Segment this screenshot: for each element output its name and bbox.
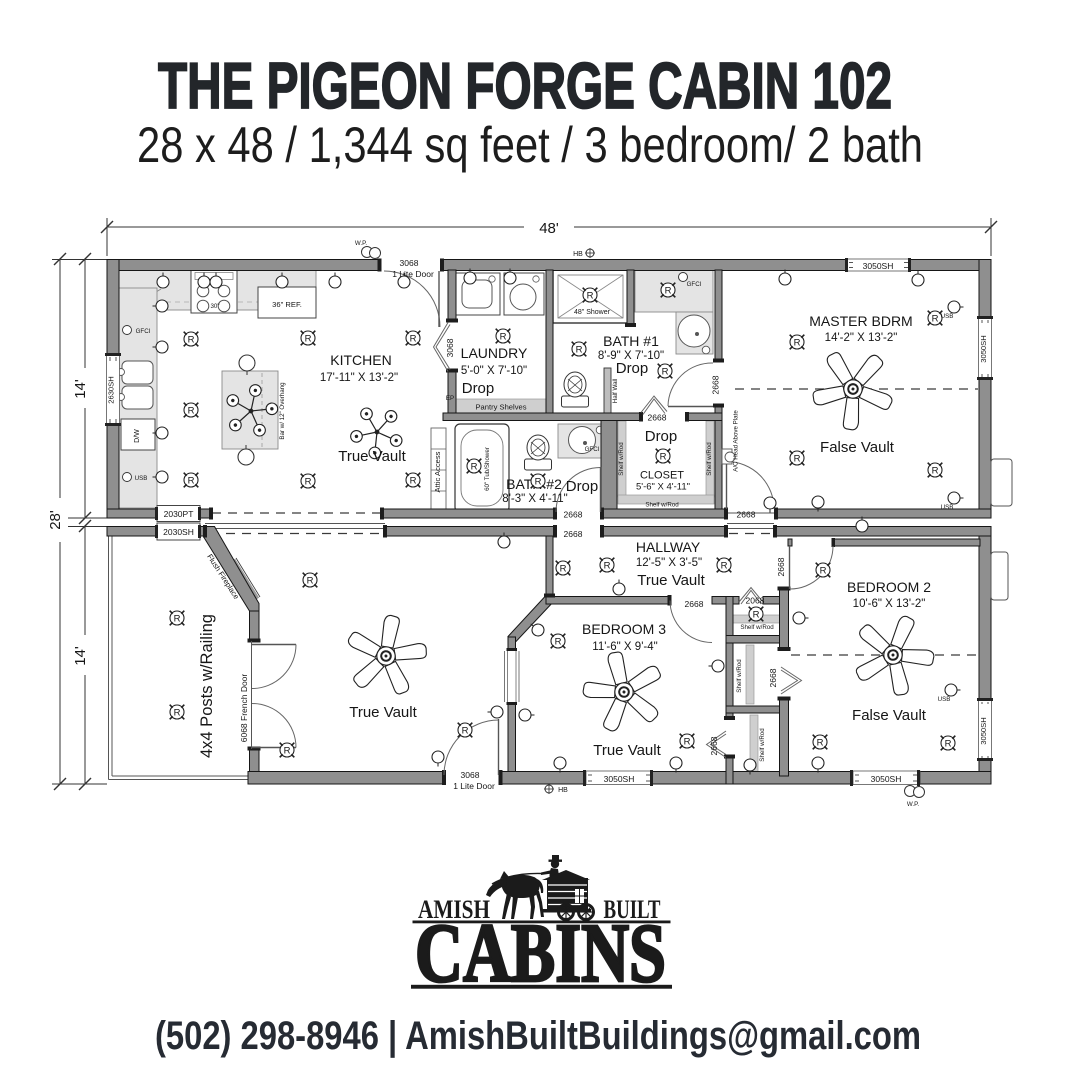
svg-text:5'-0" X 7'-10": 5'-0" X 7'-10" bbox=[461, 365, 527, 377]
svg-text:14': 14' bbox=[72, 379, 89, 399]
svg-text:2668: 2668 bbox=[768, 668, 778, 687]
svg-text:48': 48' bbox=[539, 220, 559, 237]
svg-text:True Vault: True Vault bbox=[637, 572, 705, 589]
svg-text:True Vault: True Vault bbox=[593, 742, 661, 759]
svg-text:2068: 2068 bbox=[746, 596, 765, 606]
svg-text:2668: 2668 bbox=[685, 599, 704, 609]
svg-text:5'-6" X 4'-11": 5'-6" X 4'-11" bbox=[636, 482, 690, 493]
svg-text:30": 30" bbox=[210, 303, 219, 310]
svg-text:3068: 3068 bbox=[445, 338, 455, 357]
svg-text:28 x 48 / 1,344 sq feet / 3 be: 28 x 48 / 1,344 sq feet / 3 bedroom/ 2 b… bbox=[137, 117, 923, 173]
svg-text:Drop: Drop bbox=[645, 428, 678, 445]
svg-text:GFCI: GFCI bbox=[585, 446, 600, 453]
svg-text:False Vault: False Vault bbox=[820, 439, 895, 456]
svg-text:True Vault: True Vault bbox=[349, 704, 417, 721]
svg-text:THE PIGEON FORGE CABIN 102: THE PIGEON FORGE CABIN 102 bbox=[158, 49, 892, 122]
svg-text:Shelf w/Rod: Shelf w/Rod bbox=[736, 659, 743, 693]
svg-text:1 Lite Door: 1 Lite Door bbox=[392, 269, 434, 279]
svg-text:BATH #1: BATH #1 bbox=[603, 333, 659, 349]
svg-text:2668: 2668 bbox=[776, 557, 786, 576]
svg-text:2668: 2668 bbox=[711, 375, 721, 394]
svg-text:48" Shower: 48" Shower bbox=[574, 309, 611, 316]
svg-text:Shelf w/Rod: Shelf w/Rod bbox=[618, 442, 625, 476]
svg-text:3050SH: 3050SH bbox=[871, 774, 902, 784]
svg-text:4x4 Posts w/Railing: 4x4 Posts w/Railing bbox=[198, 614, 216, 758]
svg-text:Shelf w/Rod: Shelf w/Rod bbox=[645, 502, 679, 509]
svg-text:2630SH: 2630SH bbox=[107, 376, 116, 403]
svg-text:USB: USB bbox=[135, 475, 148, 482]
svg-text:Drop: Drop bbox=[462, 380, 495, 397]
svg-text:Half Wall: Half Wall bbox=[612, 379, 619, 404]
svg-text:3050SH: 3050SH bbox=[863, 261, 894, 271]
svg-text:BEDROOM 2: BEDROOM 2 bbox=[847, 579, 931, 595]
svg-text:USB: USB bbox=[941, 313, 954, 320]
svg-text:3068: 3068 bbox=[461, 770, 480, 780]
svg-text:2668: 2668 bbox=[564, 529, 583, 539]
svg-text:2668: 2668 bbox=[648, 413, 667, 423]
svg-text:GFCI: GFCI bbox=[687, 281, 702, 288]
svg-text:36" REF.: 36" REF. bbox=[272, 300, 302, 309]
svg-text:W.P.: W.P. bbox=[907, 801, 920, 808]
svg-text:A/C Head Above Plate: A/C Head Above Plate bbox=[733, 410, 740, 472]
svg-text:HB: HB bbox=[558, 787, 568, 794]
svg-text:14': 14' bbox=[72, 646, 89, 666]
svg-text:W.P.: W.P. bbox=[355, 240, 368, 247]
svg-text:GFCI: GFCI bbox=[136, 328, 151, 335]
svg-text:KITCHEN: KITCHEN bbox=[330, 352, 391, 368]
svg-text:8'-3" X 4'-11": 8'-3" X 4'-11" bbox=[502, 493, 567, 505]
svg-text:2668: 2668 bbox=[564, 510, 583, 520]
svg-text:D/W: D/W bbox=[134, 429, 141, 443]
svg-text:3050SH: 3050SH bbox=[979, 335, 988, 362]
svg-text:Shelf w/Rod: Shelf w/Rod bbox=[740, 624, 774, 631]
svg-text:(502) 298-8946 | AmishBuiltBui: (502) 298-8946 | AmishBuiltBuildings@gma… bbox=[155, 1014, 921, 1058]
svg-text:Pantry Shelves: Pantry Shelves bbox=[475, 403, 526, 412]
svg-text:Attic Access: Attic Access bbox=[433, 451, 442, 492]
svg-text:USB: USB bbox=[938, 696, 951, 703]
svg-text:6068 French Door: 6068 French Door bbox=[239, 674, 249, 743]
svg-text:10'-6" X 13'-2": 10'-6" X 13'-2" bbox=[853, 598, 926, 610]
svg-text:3068: 3068 bbox=[400, 258, 419, 268]
svg-text:2030PT: 2030PT bbox=[164, 509, 194, 519]
svg-text:Bar w/ 12" Overhang: Bar w/ 12" Overhang bbox=[279, 382, 286, 440]
svg-text:14'-2" X 13'-2": 14'-2" X 13'-2" bbox=[825, 332, 898, 344]
svg-text:LAUNDRY: LAUNDRY bbox=[461, 345, 528, 361]
svg-text:HALLWAY: HALLWAY bbox=[636, 539, 701, 555]
svg-text:USB: USB bbox=[941, 504, 954, 511]
svg-text:Shelf w/Rod: Shelf w/Rod bbox=[706, 442, 713, 476]
svg-text:2668: 2668 bbox=[709, 736, 719, 755]
svg-text:Drop: Drop bbox=[566, 478, 599, 495]
svg-text:BEDROOM 3: BEDROOM 3 bbox=[582, 621, 666, 637]
svg-text:EP: EP bbox=[446, 395, 454, 402]
svg-text:11'-6" X 9'-4": 11'-6" X 9'-4" bbox=[592, 641, 657, 653]
svg-text:HB: HB bbox=[573, 251, 583, 258]
svg-text:Drop: Drop bbox=[616, 360, 649, 377]
svg-text:3050SH: 3050SH bbox=[604, 774, 635, 784]
svg-text:True Vault: True Vault bbox=[338, 448, 406, 465]
svg-text:28': 28' bbox=[47, 510, 64, 530]
svg-text:12'-5" X 3'-5": 12'-5" X 3'-5" bbox=[636, 557, 702, 569]
svg-text:17'-11" X 13'-2": 17'-11" X 13'-2" bbox=[320, 372, 398, 384]
svg-text:2030SH: 2030SH bbox=[163, 527, 194, 537]
svg-text:MASTER BDRM: MASTER BDRM bbox=[809, 313, 912, 329]
svg-text:False Vault: False Vault bbox=[852, 707, 927, 724]
svg-text:2668: 2668 bbox=[737, 510, 756, 520]
svg-text:60" Tub/Shower: 60" Tub/Shower bbox=[484, 447, 491, 491]
svg-text:CLOSET: CLOSET bbox=[640, 470, 684, 482]
svg-text:1 Lite Door: 1 Lite Door bbox=[453, 781, 495, 791]
svg-text:3050SH: 3050SH bbox=[979, 717, 988, 744]
svg-text:Shelf w/Rod: Shelf w/Rod bbox=[759, 728, 766, 762]
